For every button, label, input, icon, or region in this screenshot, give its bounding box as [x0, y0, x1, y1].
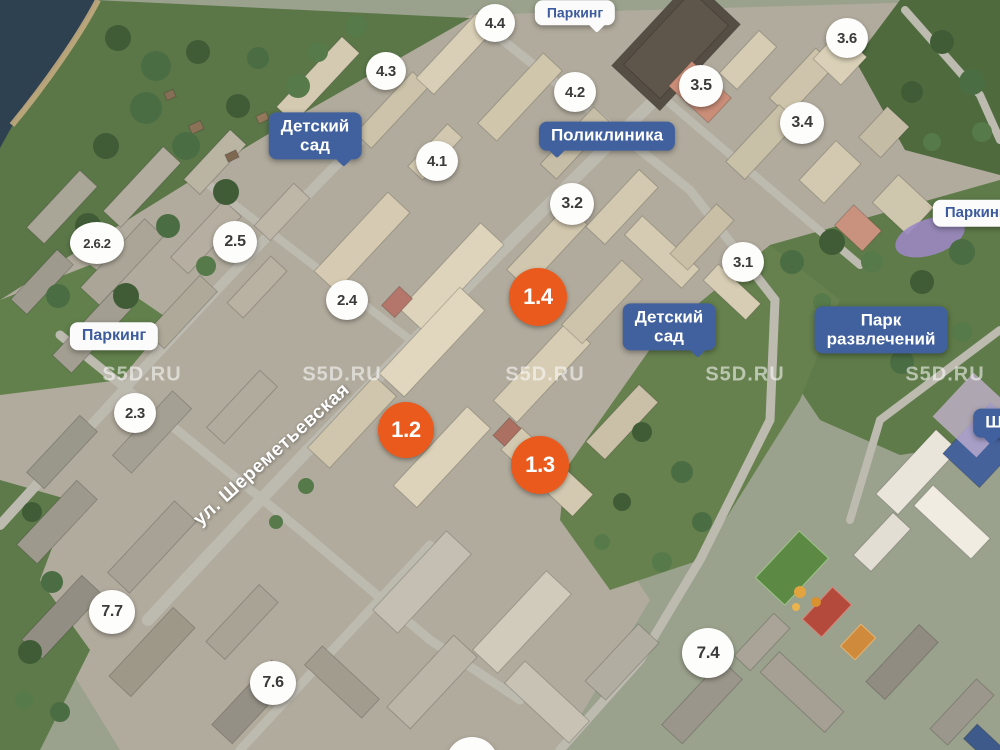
badge-pointer [335, 150, 352, 167]
badge-pointer [548, 141, 565, 158]
kindergarten-badge-east[interactable]: Детский сад [623, 303, 716, 350]
building-marker-2-4[interactable]: 2.4 [326, 280, 368, 320]
map-viewport: S5D.RUS5D.RUS5D.RUS5D.RUS5D.RUул. Шереме… [0, 0, 1000, 750]
badge-pointer [983, 428, 1000, 445]
badge-pointer [589, 16, 606, 33]
building-marker-1-4[interactable]: 1.4 [509, 268, 567, 326]
kindergarten-badge-west[interactable]: Детский сад [269, 112, 362, 159]
building-marker-2-5[interactable]: 2.5 [213, 221, 257, 263]
building-marker-4-4[interactable]: 4.4 [475, 4, 515, 42]
building-marker-2-3[interactable]: 2.3 [114, 393, 156, 433]
watermark: S5D.RU [102, 364, 181, 387]
watermark: S5D.RU [505, 364, 584, 387]
building-marker-1-2[interactable]: 1.2 [378, 402, 434, 458]
parking-badge-east[interactable]: Паркинг [933, 200, 1000, 227]
amusement-park-badge[interactable]: Парк развлечений [815, 306, 948, 353]
school-badge[interactable]: Школа [973, 409, 1000, 438]
watermark: S5D.RU [705, 364, 784, 387]
building-marker-4-2[interactable]: 4.2 [554, 72, 596, 112]
building-marker-1-3[interactable]: 1.3 [511, 436, 569, 494]
building-marker-3-2[interactable]: 3.2 [550, 183, 594, 225]
building-marker-2-6-2[interactable]: 2.6.2 [70, 222, 124, 264]
building-marker-4-3[interactable]: 4.3 [366, 52, 406, 90]
map-overlay: S5D.RUS5D.RUS5D.RUS5D.RUS5D.RUул. Шереме… [0, 0, 1000, 750]
building-marker-4-1[interactable]: 4.1 [416, 141, 458, 181]
building-marker-7-6[interactable]: 7.6 [250, 661, 296, 705]
parking-badge-west[interactable]: Паркинг [70, 322, 158, 350]
parking-badge-north[interactable]: Паркинг [535, 0, 615, 25]
building-marker-3-6[interactable]: 3.6 [826, 18, 868, 58]
street-label: ул. Шереметьевская [189, 379, 354, 531]
building-marker-partial[interactable] [446, 737, 498, 750]
polyclinic-badge[interactable]: Поликлиника [539, 122, 675, 151]
watermark: S5D.RU [905, 364, 984, 387]
building-marker-7-4[interactable]: 7.4 [682, 628, 734, 678]
badge-pointer [689, 341, 706, 358]
building-marker-3-1[interactable]: 3.1 [722, 242, 764, 282]
building-marker-3-5[interactable]: 3.5 [679, 65, 723, 107]
building-marker-3-4[interactable]: 3.4 [780, 102, 824, 144]
building-marker-7-7[interactable]: 7.7 [89, 590, 135, 634]
